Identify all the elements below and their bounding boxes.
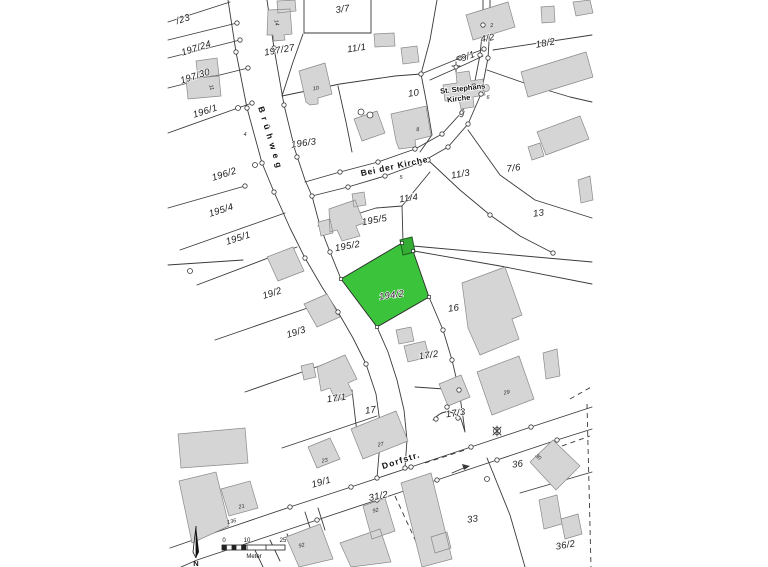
parcel-label: 11/4 — [398, 192, 418, 206]
house-number-label: 14 — [272, 19, 279, 26]
parcel-label: 16 — [447, 302, 460, 315]
parcel-label: 10 — [407, 87, 420, 100]
parcel-label: 13 — [532, 207, 545, 220]
parcel-label: 11/1 — [346, 42, 366, 56]
parcel-label: 197/27 — [263, 42, 296, 58]
parcel-label: 195/5 — [361, 213, 388, 228]
scale-tick-label: 25 — [280, 538, 287, 544]
scale-bar — [222, 545, 285, 550]
house-number-label: 6 — [486, 95, 490, 101]
parcel-label: 17/2 — [418, 349, 439, 363]
parcel-label: 19/1 — [310, 475, 332, 491]
parcel-label: 3/7 — [335, 3, 351, 16]
scale-tick-label: 10 — [244, 538, 251, 544]
scale-tick-label: 0 — [222, 538, 226, 544]
parcel-label: 9 — [458, 109, 465, 121]
parcel-label: 9/1 — [460, 49, 477, 64]
parcel-label: 18/2 — [535, 36, 557, 50]
highlighted-parcel-194-2[interactable] — [341, 243, 429, 327]
parcel-label: 195/4 — [208, 201, 235, 219]
map-canvas: /23197/24197/30196/1197/273/711/14/218/2… — [0, 0, 768, 567]
parcel-label: 7/6 — [506, 162, 522, 175]
street-name-label: Dorfstr. — [381, 449, 422, 471]
north-parcel-lines — [282, 0, 592, 218]
north-label: N — [193, 559, 198, 567]
parcel-label: 196/3 — [290, 136, 317, 150]
parcel-label: 195/1 — [225, 229, 252, 247]
house-number-label: 136 — [227, 518, 238, 526]
parcel-label: 196/1 — [192, 102, 219, 120]
parcel-label: 11/3 — [450, 167, 471, 181]
scale-tick-label: Meter — [246, 554, 261, 560]
cadastral-map-page: /23197/24197/30196/1197/273/711/14/218/2… — [0, 0, 768, 567]
parcel-label: 195/2 — [334, 239, 361, 254]
parcel-label: 4/2 — [480, 32, 496, 45]
parcel-label: 19/2 — [261, 285, 284, 302]
parcel-label: 17 — [364, 404, 377, 417]
parcel-label: 196/2 — [211, 165, 239, 183]
parcel-label: 33 — [466, 513, 479, 526]
street-name-label: Bei der Kirche — [360, 154, 429, 178]
parcel-label: 197/24 — [180, 39, 213, 59]
benchmark-symbol-icon — [493, 426, 501, 436]
parcel-label: 36/2 — [555, 538, 577, 552]
parcel-label: 17/1 — [326, 392, 347, 406]
parcel-label: 36 — [511, 458, 524, 471]
parcel-label: /23 — [174, 12, 192, 27]
house-number-label: 4 — [243, 132, 246, 138]
house-number-label: 5 — [399, 175, 403, 181]
parcel-label: 19/3 — [285, 324, 308, 341]
house-number-label: 65 — [456, 56, 463, 62]
